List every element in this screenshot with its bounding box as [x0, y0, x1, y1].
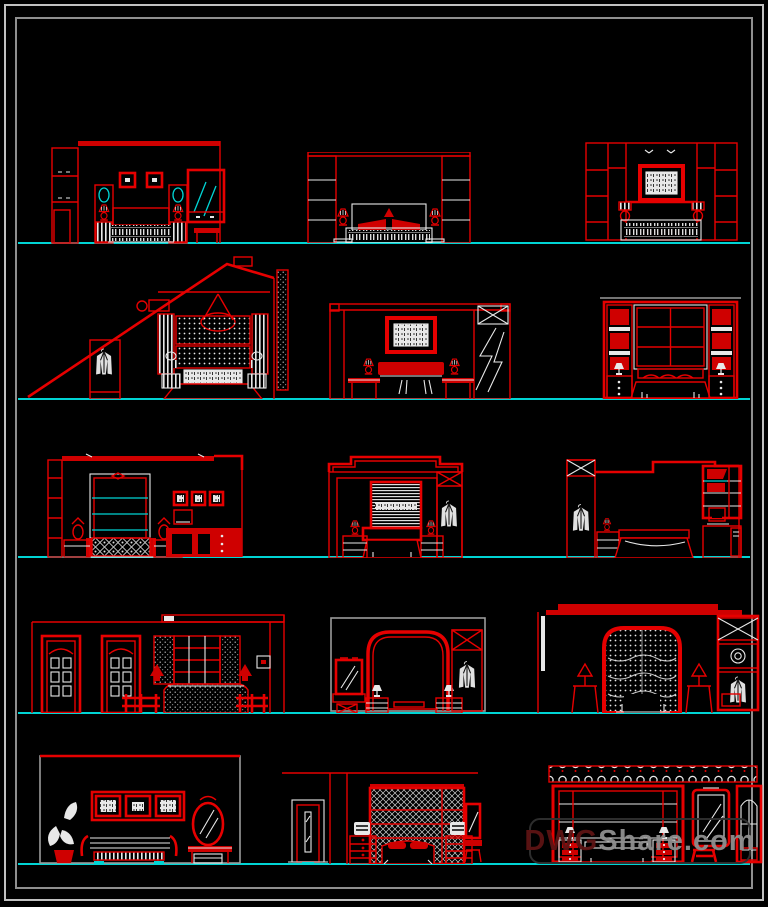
- elevation-bed-wall-center-picture-frame: [583, 138, 740, 243]
- watermark: DWGShare.com: [529, 818, 751, 864]
- elevation-bed-wall-cabinet-grid: [598, 290, 743, 399]
- elevation-headboard-shelf-desk-wall: [46, 448, 246, 558]
- watermark-sharecom: Share.com: [598, 825, 755, 858]
- door-left: [42, 636, 80, 713]
- elevation-console-bench-oval-mirror-wall: [36, 748, 252, 864]
- elevation-wardrobe-desk-bedroom-wall: [563, 448, 743, 558]
- elevation-double-doors-shelving-bed-wall: [24, 606, 292, 713]
- elevation-bedroom-wall-wardrobe-bed-vanity: [48, 138, 258, 244]
- elevation-bed-wall-symmetric-shelves: [306, 152, 472, 243]
- elevation-bed-wall-framed-art: [328, 292, 513, 399]
- cad-sheet: DWGShare.com: [0, 0, 768, 907]
- elevation-attic-bedroom-section: [22, 256, 292, 399]
- door-right: [102, 636, 140, 713]
- elevation-bed-alcove-window-blinds: [323, 448, 468, 558]
- door: [288, 800, 328, 864]
- elevation-arched-curtain-headboard-wall: [528, 598, 760, 713]
- elevation-door-curtain-bed-wall: [278, 748, 482, 864]
- elevation-arched-bed-alcove-mirror: [328, 616, 488, 713]
- watermark-dwg: DWG: [524, 825, 598, 858]
